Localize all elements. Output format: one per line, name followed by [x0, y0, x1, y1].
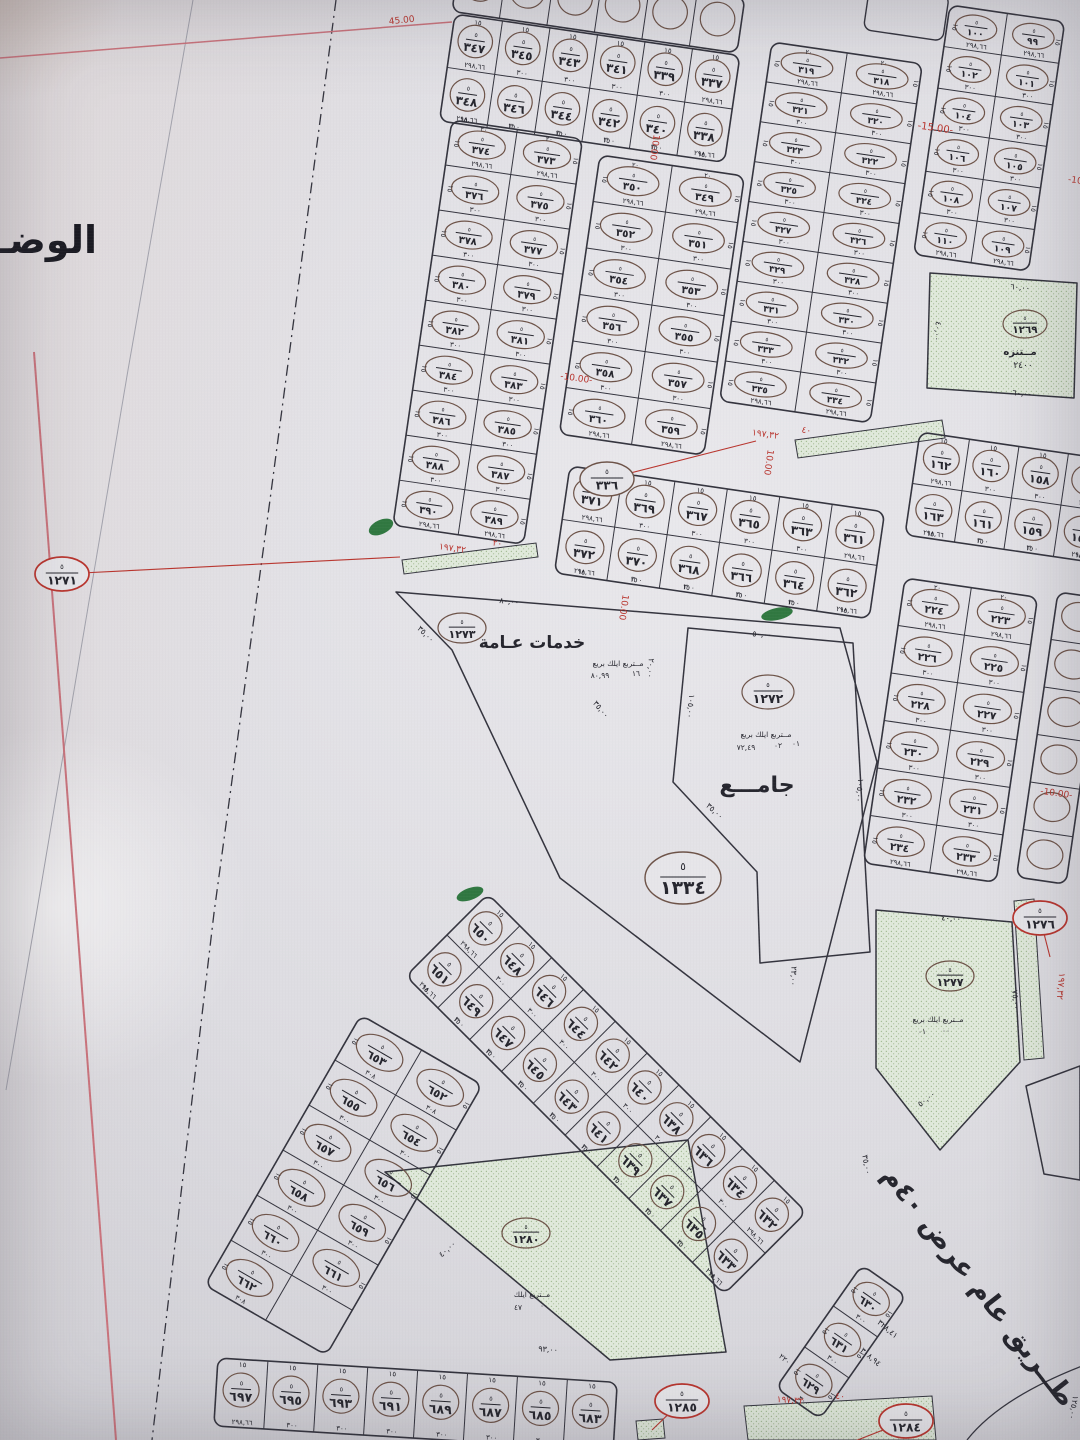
plot-cell: ٥٣٤٤٣٠٠١٥ [541, 90, 582, 140]
plot-cell: ٥٢٢٧٣٠٠١٥ [960, 691, 1023, 739]
plot-divider [629, 42, 645, 149]
plot-area: ٣٠٠ [528, 260, 540, 270]
plot-width: ١٥ [748, 494, 757, 503]
plot-width: ١٥ [884, 741, 894, 750]
plot-number-numerator: ٥ [709, 1142, 717, 1150]
plot-width: ١٥ [350, 1036, 361, 1047]
plot-width: ١٥ [460, 115, 469, 124]
plot-number: ٣٧٦ [464, 190, 484, 204]
plot-divider [632, 166, 673, 445]
plot-number-numerator: ٥ [1026, 70, 1030, 76]
plot-divider [817, 504, 833, 611]
plot-cell: ٥٣٧٠٣٠٠١٥ [614, 536, 658, 586]
plot-width: ١٥ [849, 1284, 860, 1295]
plot-number: ٣٤٩ [694, 191, 715, 206]
plot-number-numerator: ٥ [539, 1398, 543, 1406]
plot-number-numerator: ٥ [948, 968, 951, 974]
plot-cell: ٥٢٣٤٢٩٨,٦٦١٥ [867, 823, 926, 870]
plot-number: ٢٢٩ [969, 754, 991, 770]
plot-cell: ٥٣٧٧٣٠٠١٥ [507, 228, 569, 274]
plot-number-numerator: ٥ [771, 297, 775, 303]
plot-area: ٣٠٠ [495, 485, 507, 495]
plot-number: ٦٩٧ [229, 1389, 253, 1405]
plot-area: ٣٠٠ [679, 348, 691, 358]
plot-number: ٣٥٩ [660, 423, 681, 438]
plot-number: ٣٥٤ [608, 273, 629, 288]
parcel-mosque-label: جامـــع [719, 773, 794, 798]
plot-number-oval [1060, 600, 1080, 634]
plot-width: ١٥ [551, 291, 561, 300]
plot-number-numerator: ٥ [834, 388, 838, 394]
plot-width: ١٥ [705, 380, 715, 389]
plot-divider [594, 0, 602, 32]
plot-divider [463, 1373, 467, 1440]
plot-number-numerator: ٥ [440, 1080, 446, 1087]
plot-width: ١٥ [682, 583, 691, 592]
plot-area: ٢٩٨,٦٦ [231, 1418, 253, 1427]
plot-area: ٣٠٠ [320, 1284, 334, 1297]
plot-cell: ٥٣٣٧٢٩٨,٦٦١٥ [691, 51, 733, 107]
plot-cell: ٥٦٣٤٣٠٠١٥ [707, 1154, 769, 1216]
plot-width: ١٥ [445, 184, 455, 193]
plot-area: ٣٠٠ [494, 975, 508, 989]
green-ink-mark [366, 515, 395, 539]
plot-width: ١٥ [926, 530, 935, 539]
plot-number: ١٠١ [1017, 77, 1035, 90]
plot-number-oval [698, 0, 737, 38]
plot-cell: ٥٣٦٨٣٠٠١٥ [667, 544, 711, 594]
plot-area: ٣٠٠ [620, 244, 632, 254]
plot-area: ٣٠٠ [871, 129, 883, 139]
plot-number-numerator: ٥ [704, 184, 708, 190]
block-99-110: ٥١٠٠٢٩٨,٦٦١٥٥٩٩٢٩٨,٦٦١٥٥١٠٢٣٠٠١٥٥١٠١٣٠٠١… [914, 5, 1065, 271]
parcel-services-label: خدمات عـامة [479, 633, 586, 653]
plot-area: ٣٠٠ [796, 545, 808, 555]
plot-number-numerator: ٥ [362, 1215, 368, 1222]
plot-width: ١٥ [521, 25, 530, 34]
plot-depth: ٢٠ [704, 171, 712, 180]
plot-number: ٣٣٥ [751, 384, 769, 396]
plot-divider [971, 13, 1007, 262]
plot-area: ٣٠٠ [658, 89, 670, 99]
plot-number: ١٠٥ [1005, 160, 1024, 173]
plot-cell: ٥١٥٩٣٠٠١٥ [1011, 507, 1053, 555]
plot-width: ١٥ [579, 314, 589, 323]
plot-width: ١٥ [887, 238, 897, 247]
plot-depth: ٢٠ [1000, 593, 1008, 602]
plot-area: ٣٠٠ [508, 395, 520, 405]
plot-width: ١٥ [399, 499, 409, 508]
plot-number-numerator: ٥ [677, 370, 681, 376]
parcel-park-1280-outline [385, 1140, 726, 1360]
parcel-park-1277-label: مــتربع ايلك بريع [913, 1015, 964, 1024]
plot-width: ١٥ [600, 175, 610, 184]
plot-cell [461, 0, 500, 4]
plot-width: ١٥ [991, 853, 1001, 862]
plot-cell: ٥٦٨٣٢٩٨,٦٦١٥ [570, 1381, 610, 1440]
plot-number-numerator: ٥ [625, 220, 629, 226]
plot-width: ١٥ [220, 1261, 231, 1272]
dimension-label: ٦٠,٠٠ [1012, 388, 1032, 399]
plot-area: ٣٠٠ [967, 821, 979, 831]
plot-number-numerator: ٥ [664, 60, 668, 67]
plot-width: ١٥ [1039, 451, 1048, 460]
plot-width: ١٥ [538, 1379, 546, 1387]
plot-divider [689, 0, 697, 46]
plot-number-numerator: ٥ [944, 228, 948, 234]
plot-number-numerator: ٥ [480, 137, 484, 143]
plot-number-numerator: ٥ [466, 85, 470, 92]
plot-area: ٣٠٠ [974, 773, 986, 783]
plot-area: ٣٠٠ [1034, 492, 1046, 502]
plot-cell: ٥٣٥٦٣٠٠١٥ [577, 302, 641, 349]
plot-number: ٢٣٣ [955, 849, 977, 865]
plot-number: ٦٨٣ [578, 1410, 602, 1426]
plot-cell: ٥٩٩٢٩٨,٦٦١٥ [1010, 21, 1065, 63]
plot-cell: ٥٢٣٢٣٠٠١٥ [874, 776, 933, 823]
dimension-label: -15.00- [917, 121, 954, 137]
plot-number: ٦٩١ [378, 1398, 402, 1414]
parcel-park-1280-label: مــتربع ايلك [514, 1290, 550, 1299]
plot-number: ٣٧٩ [516, 289, 536, 303]
plot-number: ٦٥٣ [364, 1047, 389, 1070]
plot-area: ٣٠٠ [915, 716, 927, 726]
plot-number: ١٢٨٥ [667, 1401, 697, 1415]
plot-number: ٣١٨ [873, 76, 891, 88]
plot-number-numerator: ٥ [680, 1390, 684, 1398]
plot-depth: ٢٠ [880, 59, 888, 68]
plot-cell: ٥٦٩٥٣٠٠١٥ [271, 1363, 311, 1431]
plot-number-numerator: ٥ [670, 416, 674, 422]
dimension-label: ٦٠,٠٠ [1010, 282, 1030, 293]
plot-number: ١٠٣ [1011, 118, 1030, 131]
dimension-label: ٣٥,٠٠ [416, 624, 436, 644]
plot-area: ٣٠٠ [600, 384, 612, 394]
plot-width: ١٥ [554, 129, 563, 138]
plot-cell: ٥٢٢٦٣٠٠١٥ [895, 633, 954, 680]
plot-cell: ٥٦٣٢٢٩٨,٦٦١٥ [739, 1186, 801, 1248]
plot-cell: ٥٣٨٠٣٠٠١٥ [429, 262, 487, 307]
plot-cell: ٥٦٤٧٣٠٠١٥ [474, 1010, 531, 1067]
plot-width: ١٥ [870, 358, 880, 367]
plot-divider [314, 1364, 318, 1432]
plot-width: ١٥ [882, 278, 892, 287]
plot-number-numerator: ٥ [514, 92, 518, 99]
plot-width: ١٥ [839, 606, 848, 615]
plot-cell: ٥٣٦٣٣٠٠١٥ [779, 499, 824, 555]
plot-cell [1039, 743, 1079, 777]
parcel-services: ٥١٢٧٣خدمات عـامةمــتربع ايلك بريع٨٠,٩٩١٦ [396, 592, 877, 1062]
plot-area: ٣٠٠ [638, 522, 650, 532]
boundary-dashdot [152, 0, 336, 1440]
plot-area: ٣٠٠ [1003, 216, 1015, 226]
plot-number-numerator: ٥ [60, 563, 64, 571]
plot-number: ٣٧٨ [458, 235, 479, 249]
plot-area: ٣٠٠ [854, 1313, 868, 1326]
dimension-label: ١٩٧,٣٢ [1054, 972, 1066, 1000]
plot-width: ١٥ [588, 1382, 596, 1390]
plot-number-numerator: ٥ [765, 337, 769, 343]
plot-width: ١٥ [877, 788, 887, 797]
plot-area: ٣٠٠ [611, 82, 623, 92]
plot-width: ١٥ [1018, 663, 1028, 672]
plot-number-oval [1053, 648, 1080, 682]
plot-width: ١٥ [629, 575, 638, 584]
plot-area: ٣٠٠ [1009, 175, 1021, 185]
plot-width: ١٥ [616, 39, 625, 48]
plot-area: ٣٠٠ [621, 1102, 635, 1116]
plot-area: ٣٠٨ [424, 1103, 438, 1116]
plot-number: ٣٥٥ [674, 330, 695, 345]
plot-number-numerator: ٥ [289, 1382, 293, 1390]
plot-width: ١٥ [289, 1364, 297, 1372]
plot-number-numerator: ٥ [339, 1385, 343, 1393]
plot-area: ٣٠٠ [589, 1070, 603, 1084]
plot-cell [1060, 600, 1080, 634]
plot-number: ٣٢٥ [780, 185, 798, 197]
pink-edge-top [0, 22, 452, 58]
plot-number-numerator: ٥ [794, 138, 798, 144]
dimension-label: ١٠٥,٠٠ [854, 778, 865, 803]
plot-cell: ٥٣٧٢٢٩٨,٦٦١٥ [562, 529, 606, 579]
dimension-label: ١٩٧,٣٢ [438, 542, 466, 556]
plot-number: ٣٨٠ [451, 280, 471, 294]
plot-number: ٣٣١ [762, 304, 780, 316]
plot-number: ٦٥٤ [398, 1127, 423, 1150]
plot-number-numerator: ٥ [546, 147, 550, 153]
plot-cell: ٥٣٦١٢٩٨,٦٦١٥ [832, 507, 877, 563]
plot-number-numerator: ٥ [612, 313, 616, 319]
plot-number-numerator: ٥ [477, 992, 485, 1000]
plot-number-numerator: ٥ [379, 1045, 385, 1052]
plot-cell: ٥٣٧٣٢٩٨,٦٦١٥٢٠ [520, 132, 583, 183]
plot-number: ٦٨٧ [478, 1404, 502, 1420]
plot-cell: ٥٦٤٤٣٠٠١٥ [548, 995, 610, 1057]
parcel-park-1269-outline [927, 273, 1077, 398]
plot-number: ٣٤٨ [455, 93, 479, 110]
parcel-park-1269-label: ٢٤٠٠ [1013, 361, 1032, 371]
plot-width: ١٥ [883, 1308, 894, 1319]
plot-number: ٦٥٨ [286, 1182, 311, 1205]
plot-number-numerator: ٥ [684, 323, 688, 329]
plot-width: ١٥ [507, 122, 516, 131]
plot-area: ٣٠٠ [859, 209, 871, 219]
plot-number-numerator: ٥ [1032, 29, 1036, 35]
plot-depth: ٢٠ [933, 583, 941, 592]
parcel-park-1269-label: مــتنزه [1003, 347, 1036, 358]
plot-number: ٩٩ [1026, 36, 1039, 49]
plot-cell: ٥٣٤٧٢٩٨,٦٦١٥ [454, 16, 496, 72]
plot-divider [1051, 639, 1080, 646]
plot-number: ٦٥٩ [346, 1217, 371, 1240]
plot-number-numerator: ٥ [460, 620, 463, 626]
plot-cell: ٥٣٩٠٢٩٨,٦٦١٥ [397, 487, 455, 532]
plot-area: ٣٠٠ [336, 1424, 348, 1433]
plot-divider [413, 1370, 417, 1438]
plot-number: ٣٥٣ [681, 284, 702, 299]
plot-area: ٣٠٠ [825, 1354, 839, 1367]
plot-width: ١٥ [438, 1373, 446, 1381]
plot-cell [603, 0, 642, 24]
plot-cell: ٥٦٩٧٢٩٨,٦٦١٥ [221, 1360, 261, 1428]
plot-number-numerator: ٥ [875, 109, 879, 115]
parcel-services-label: ٨٠,٩٩ [591, 671, 610, 680]
plot-area: ٣٠٠ [853, 249, 865, 259]
plot-number-numerator: ٥ [854, 522, 858, 529]
plot-width: ١٥ [726, 378, 736, 387]
plot-number-numerator: ٥ [927, 644, 931, 650]
plot-cell: ٥٣٥٧٣٠٠١٥ [649, 360, 717, 408]
dimension-label: ٥٠,٠٠ [752, 629, 772, 639]
plot-number-numerator: ٥ [428, 497, 432, 503]
plot-number: ٦٦١ [320, 1262, 345, 1285]
plot-number: ١٠٢ [960, 69, 979, 82]
plot-width: ١٥ [577, 568, 586, 577]
dimension-label: ٤٠,٠٠ [437, 1239, 458, 1259]
plot-number: ٣٨١ [510, 334, 530, 348]
plot-number-numerator: ٥ [904, 1410, 908, 1418]
plot-number: ١٢٧٦ [1025, 918, 1055, 932]
plot-cell: ٥٣٦٥٣٠٠١٥ [727, 492, 772, 548]
plot-divider [513, 1376, 517, 1440]
plot-width: ١٥ [940, 437, 949, 446]
plot-area: ٣٠٨ [364, 1068, 378, 1081]
plot-number: ٣٦٢ [834, 584, 858, 601]
plot-cell: ٥٣٤٦٣٠٠١٥ [494, 83, 535, 133]
plot-number-numerator: ٥ [1008, 195, 1012, 201]
plot-width: ١٥ [419, 364, 429, 373]
plot-number: ٣٦٨ [677, 561, 701, 578]
plot-number: ٣٢٦ [849, 236, 867, 248]
plot-cell [1046, 695, 1080, 729]
plot-cell [1025, 838, 1065, 872]
plot-number-numerator: ٥ [539, 192, 543, 198]
road-label: طــريق عام عرض ٤٠م [875, 1161, 1080, 1413]
leader-oval-١٢٧١: ٥١٢٧١ [35, 557, 400, 591]
plot-number: ١٠٨ [942, 193, 961, 206]
plot-number: ٣٣٣ [757, 344, 775, 356]
plot-width: ١٥ [525, 471, 535, 480]
plot-cell: ٥١٥٦٢٩٨,٦٦١٥ [1068, 456, 1080, 510]
plot-number-numerator: ٥ [533, 237, 537, 243]
plot-area: ٣٠٠ [534, 215, 546, 225]
plot-number: ٢٢٧ [976, 707, 998, 723]
strip-plot-336 [795, 420, 945, 458]
plot-number-numerator: ٥ [982, 509, 986, 515]
plot-number: ٣٦٥ [737, 515, 761, 532]
plot-number-numerator: ٥ [990, 457, 994, 463]
plot-cell: ٥١٦٠٣٠٠١٥ [969, 442, 1012, 496]
dimension-label: 10.00 [616, 594, 630, 621]
plot-number: ٣٨٣ [503, 379, 524, 393]
plot-area: ٣٠٠ [443, 386, 455, 396]
parcel-park-1277: ٥١٢٧٧مــتربع ايلك بريع٠١٠٠ [876, 910, 1020, 1150]
plot-number-numerator: ٥ [353, 1090, 359, 1097]
plot-number-numerator: ٥ [677, 1110, 685, 1118]
plot-number-numerator: ٥ [858, 228, 862, 234]
plot-number: ١٦٠ [978, 464, 1001, 481]
plot-cell: ٥١٥٧٢٩٨,٦٦١٥ [1060, 514, 1080, 562]
plot-divider [534, 28, 550, 135]
plot-width: ١٥ [569, 32, 578, 41]
plot-number: ٣٥٧ [667, 377, 688, 392]
plot-number-numerator: ٥ [521, 39, 525, 46]
plot-number-numerator: ٥ [766, 681, 770, 689]
fragment-top-row [452, 0, 745, 53]
plot-area: ٣٠٠ [372, 1193, 386, 1206]
plot-number-numerator: ٥ [474, 32, 478, 39]
block-337-348: ٥٣٤٧٢٩٨,٦٦١٥٥٣٤٥٣٠٠١٥٥٣٤٣٣٠٠١٥٥٣٤١٣٠٠١٥٥… [439, 14, 740, 162]
plot-area: ٣٠٨ [234, 1294, 248, 1307]
plot-number: ٣٥٦ [601, 320, 622, 335]
plot-width: ١٥ [566, 407, 576, 416]
plot-number-numerator: ٥ [301, 1180, 307, 1187]
plot-number-numerator: ٥ [414, 1125, 420, 1132]
block-318-335: ٥٣١٩٢٩٨,٦٦١٥٢٠٥٣١٨٢٩٨,٦٦١٥٢٠٥٣٢١٣٠٠١٥٥٣٢… [720, 42, 923, 423]
plot-number-numerator: ٥ [506, 417, 510, 423]
parcel-park-1277-label: ٠١ [918, 1027, 926, 1036]
dimension-label: ٧٥,٠٠ [1010, 990, 1021, 1010]
plot-area: ٣٠٠ [865, 169, 877, 179]
plot-area: ٣٠٠ [260, 1249, 274, 1262]
plot-cell: ٥٣٦٠٢٩٨,٦٦١٥ [563, 395, 627, 442]
parcel-park-1280-label: ٤٧ [514, 1303, 522, 1312]
plot-width: ١٥ [891, 693, 901, 702]
plot-number: ٢٣٠ [903, 745, 924, 761]
plot-number: ٢٣٢ [896, 792, 918, 808]
plot-width: ١٥ [644, 478, 653, 487]
plot-number: ٣٢٧ [774, 225, 792, 237]
plot-number-numerator: ٥ [966, 843, 970, 849]
plot-number: ٣٣٢ [832, 355, 850, 367]
plot-number: ٣٤٤ [550, 107, 574, 124]
plot-width: ١٥ [755, 178, 765, 187]
plot-depth: ٢٠ [480, 125, 488, 134]
plot-number-oval [1046, 695, 1080, 729]
plot-cell: ٥٣٨٤٣٠٠١٥ [416, 352, 474, 397]
plot-number-oval [461, 0, 500, 4]
plot-divider [499, 0, 507, 18]
parcel-road-side [1026, 1066, 1080, 1180]
plot-area: ٣٠٠ [946, 208, 958, 218]
plot-width: ١٥ [731, 338, 741, 347]
plot-number: ١٠٠ [966, 27, 984, 40]
plot-number: ١٦٢ [929, 457, 952, 474]
plot-width: ١٥ [870, 836, 880, 845]
plot-number: ٣٤٣ [557, 53, 581, 70]
plot-width: ١٥ [488, 1376, 496, 1384]
plot-width: ١٥ [905, 598, 915, 607]
plot-number-numerator: ٥ [899, 834, 903, 840]
plot-cell: ٥٣٤٣٣٠٠١٥ [549, 30, 591, 86]
plot-cell [698, 0, 737, 38]
plot-area: ٣٠٠ [436, 431, 448, 441]
plot-number-numerator: ٥ [963, 103, 967, 109]
parcel-services-label: مــتربع ايلك بريع [593, 659, 644, 668]
plot-number: ٣٨٧ [490, 469, 511, 483]
plot-number-numerator: ٥ [644, 492, 648, 499]
plot-area: ٣٠٠ [988, 678, 1000, 688]
plot-cell: ٥٣٨٩٢٩٨,٦٦١٥ [467, 498, 529, 544]
plot-width: ١٥ [272, 1171, 283, 1182]
plot-width: ١٥ [564, 201, 574, 210]
plot-cell: ٥٢٢٨٣٠٠١٥ [888, 681, 947, 728]
plot-cell: ٥٦٥١٢٩٨,٦٦١٥ [411, 946, 468, 1003]
plot-number: ٣٣٩ [652, 67, 676, 84]
plot-number-numerator: ٥ [441, 407, 445, 413]
plot-width: ١٥ [911, 79, 921, 88]
plot-width: ١٥ [557, 246, 567, 255]
